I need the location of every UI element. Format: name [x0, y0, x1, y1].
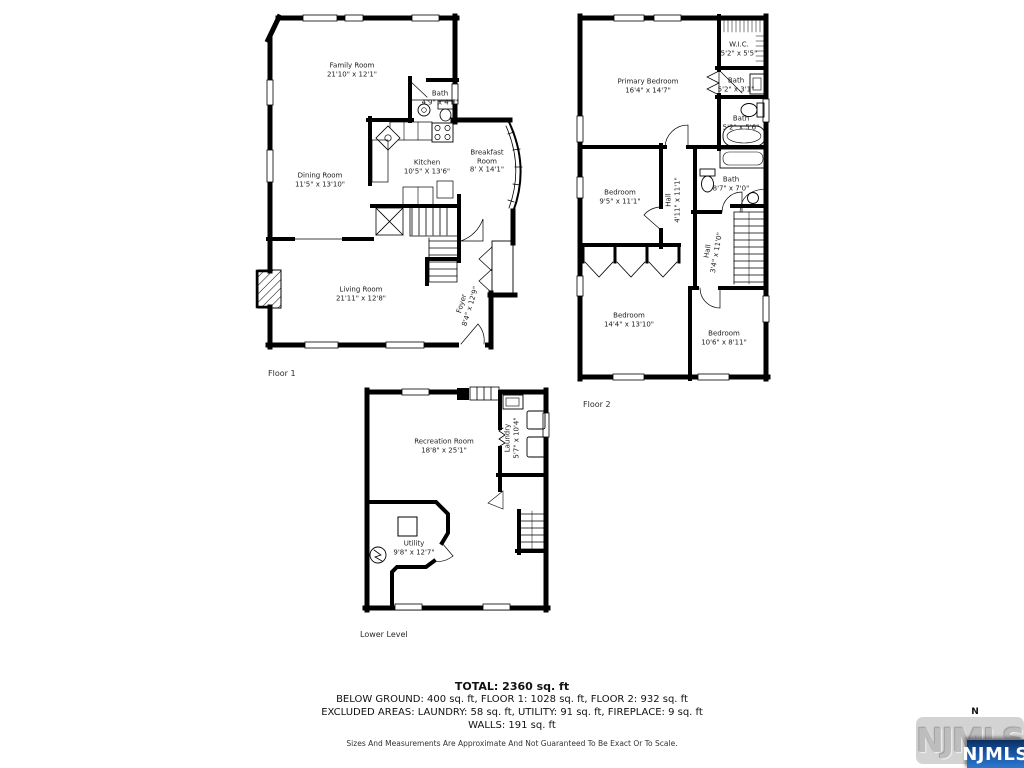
label-bedroom2: Bedroom 14'4" x 13'10" [604, 312, 654, 329]
area-summary: TOTAL: 2360 sq. ft BELOW GROUND: 400 sq.… [0, 680, 1024, 748]
room-dims: 10'5" X 13'6" [404, 167, 450, 176]
fireplace [257, 270, 281, 308]
walls-area: WALLS: 191 sq. ft [0, 719, 1024, 732]
closet-under-stairs [376, 208, 403, 235]
label-bath-mid: Bath 5'2" x 5'6" [723, 115, 760, 132]
floor2-tag: Floor 2 [583, 400, 611, 409]
room-name: Living Room [336, 286, 386, 295]
room-dims: 5'2" x 5'5" [721, 49, 758, 58]
room-name: Recreation Room [414, 438, 474, 447]
label-dining-room: Dining Room 11'5" x 13'10" [295, 172, 345, 189]
sink2 [748, 193, 759, 204]
label-wic: W.I.C. 5'2" x 5'5" [721, 41, 758, 58]
room-dims: 21'10" x 12'1" [327, 70, 377, 79]
washer [527, 411, 545, 429]
wall-block [457, 388, 469, 400]
floor-areas: BELOW GROUND: 400 sq. ft, FLOOR 1: 1028 … [0, 693, 1024, 706]
room-name: Bath [718, 77, 755, 86]
compass-north-label: N [971, 707, 979, 717]
room-name: Dining Room [295, 172, 345, 181]
floor2-stairs [734, 212, 764, 284]
utility-door [434, 543, 453, 561]
room-dims: 21'11" x 12'8" [336, 294, 386, 303]
room-dims: 5'2" x 3'1" [718, 85, 755, 94]
label-kitchen: Kitchen 10'5" X 13'6" [404, 159, 450, 176]
label-primary-bedroom: Primary Bedroom 16'4" x 14'7" [618, 78, 679, 95]
room-name: Primary Bedroom [618, 78, 679, 87]
njmls-logo-badge: NJMLS [967, 739, 1024, 768]
lower-stairs [488, 491, 546, 553]
room-name: Utility [393, 540, 434, 549]
room-dims: 14'4" x 13'10" [604, 320, 654, 329]
room-dims: 8'7" x 7'0" [713, 184, 750, 193]
floor1-stairs [410, 208, 459, 282]
label-living-room: Living Room 21'11" x 12'8" [336, 286, 386, 303]
room-dims: 4'9" x 4'9" [422, 98, 459, 107]
room-dims: 9'8" x 12'7" [393, 548, 434, 557]
total-area: TOTAL: 2360 sq. ft [0, 680, 1024, 693]
room-name: Bath [713, 176, 750, 185]
room-dims: 11'5" x 13'10" [295, 180, 345, 189]
room-dims: 5'2" x 5'6" [723, 123, 760, 132]
room-name: W.I.C. [721, 41, 758, 50]
label-bath-large: Bath 8'7" x 7'0" [713, 176, 750, 193]
room-dims: 10'6" x 8'11" [701, 338, 747, 347]
floorplan-sheet: Family Room 21'10" x 12'1" Bath 4'9" x 4… [0, 0, 1024, 768]
room-name: Kitchen [404, 159, 450, 168]
room-dims: 18'8" x 25'1" [414, 446, 474, 455]
stove [432, 123, 453, 142]
room-name: Bedroom [701, 330, 747, 339]
lower-level-tag: Lower Level [360, 630, 408, 639]
room-dims: 9'5" x 11'1" [599, 197, 640, 206]
furnace [398, 517, 417, 536]
disclaimer: Sizes And Measurements Are Approximate A… [0, 739, 1024, 748]
floorplan-drawing [0, 0, 1024, 768]
label-laundry: Laundry 5'7" x 10'4" [504, 417, 521, 458]
room-dims: 5'7" x 10'4" [512, 417, 521, 458]
electrical-panel [370, 547, 386, 563]
label-hall1: Hall 4'11" x 11'1" [665, 177, 682, 223]
room-name: Laundry [504, 417, 513, 458]
excluded-areas: EXCLUDED AREAS: LAUNDRY: 58 sq. ft, UTIL… [0, 706, 1024, 719]
label-bedroom3: Bedroom 10'6" x 8'11" [701, 330, 747, 347]
foyer-closet [479, 241, 513, 294]
room-name: Bath [422, 90, 459, 99]
label-recreation-room: Recreation Room 18'8" x 25'1" [414, 438, 474, 455]
lower-windows [395, 389, 549, 610]
room-name: Bedroom [604, 312, 654, 321]
lower-level-plan [365, 387, 549, 610]
closet-doors [585, 262, 677, 277]
room-dims: 8' X 14'1" [465, 165, 509, 174]
label-breakfast-room: Breakfast Room 8' X 14'1" [465, 148, 509, 174]
room-dims: 16'4" x 14'7" [618, 86, 679, 95]
floor1-tag: Floor 1 [268, 369, 296, 378]
label-family-room: Family Room 21'10" x 12'1" [327, 62, 377, 79]
label-utility: Utility 9'8" x 12'7" [393, 540, 434, 557]
bulkhead-stairs [470, 387, 499, 400]
label-bath-small: Bath 5'2" x 3'1" [718, 77, 755, 94]
room-name: Family Room [327, 62, 377, 71]
label-bedroom1: Bedroom 9'5" x 11'1" [599, 189, 640, 206]
label-bath-f1: Bath 4'9" x 4'9" [422, 90, 459, 107]
room-name: Bedroom [599, 189, 640, 198]
room-dims: 4'11" x 11'1" [673, 177, 682, 223]
room-name: Hall [665, 177, 674, 223]
room-name: Breakfast Room [465, 148, 509, 165]
dryer [527, 437, 545, 457]
toilet-bowl [440, 109, 451, 121]
room-name: Bath [723, 115, 760, 124]
